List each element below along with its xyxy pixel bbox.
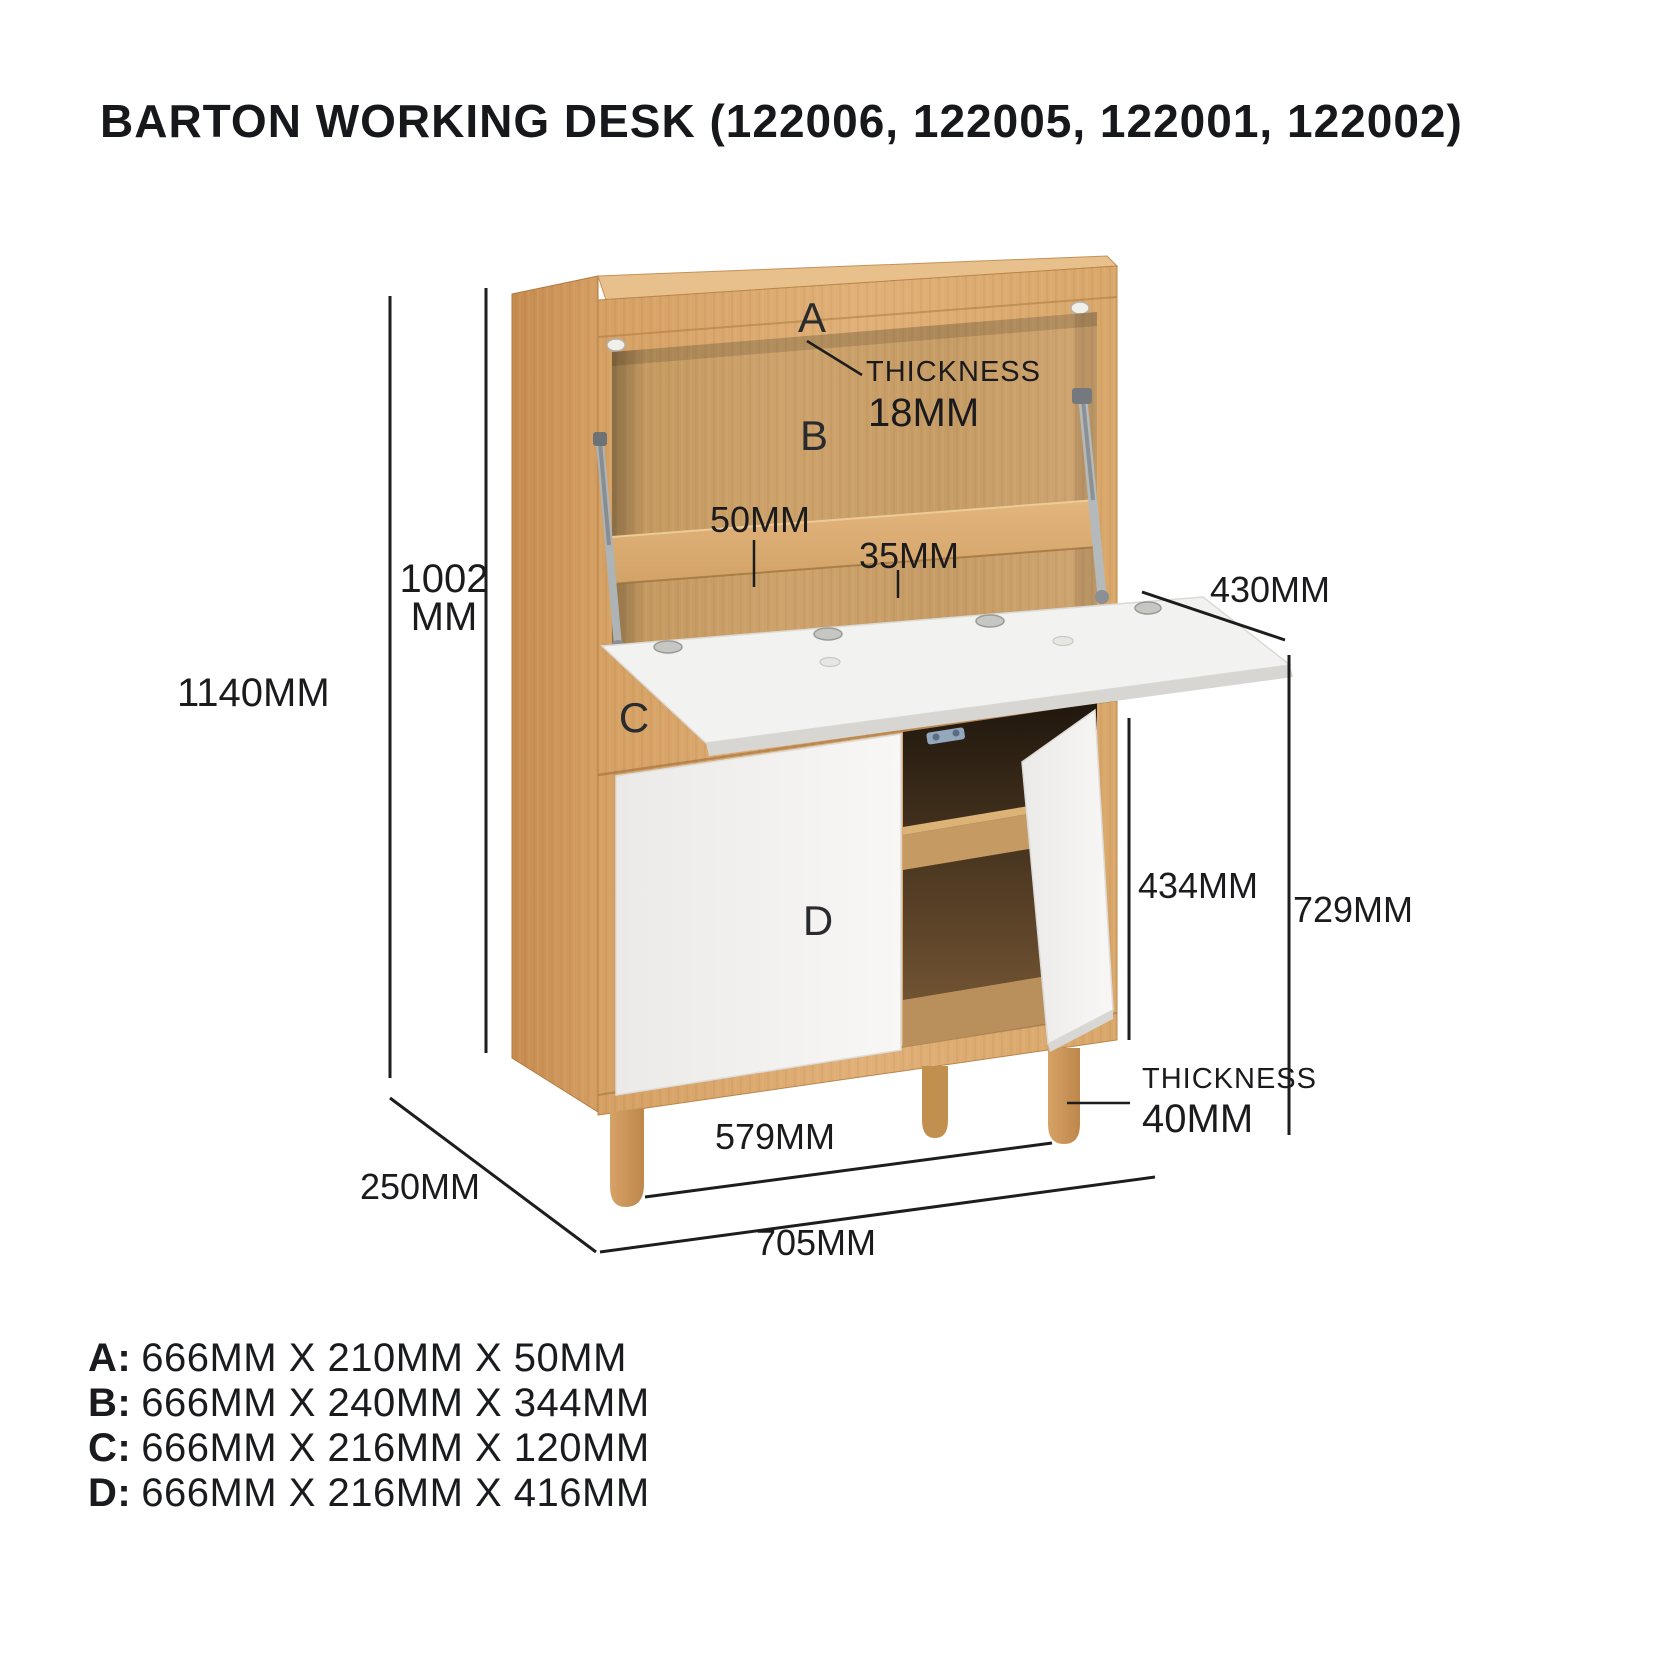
dim-line-total-width xyxy=(600,1177,1155,1252)
legend-dims-d: 666MM X 216MM X 416MM xyxy=(141,1471,649,1515)
leg-span-label: 579MM xyxy=(715,1116,835,1157)
part-label-a: A xyxy=(798,294,826,341)
leg-thickness-value: 40MM xyxy=(1142,1097,1253,1141)
rail-height-label: 50MM xyxy=(710,499,810,540)
legend-item-d: D:666MM X 216MM X 416MM xyxy=(88,1471,650,1516)
leg-thickness-label: THICKNESS xyxy=(1142,1063,1317,1095)
legend-key-d: D: xyxy=(88,1471,131,1515)
desk-depth-label: 430MM xyxy=(1210,569,1330,610)
left-side-grain xyxy=(512,276,598,1112)
part-label-c: C xyxy=(619,694,649,741)
desk-cam-left xyxy=(820,658,840,667)
legend-key-b: B: xyxy=(88,1381,131,1425)
front-left-leg xyxy=(610,1108,644,1207)
total-width-label: 705MM xyxy=(756,1222,876,1263)
lower-height-label: 729MM xyxy=(1293,889,1413,930)
dimension-legend: A:666MM X 210MM X 50MM B:666MM X 240MM X… xyxy=(88,1336,650,1516)
left-door xyxy=(616,734,901,1095)
door-height-label: 434MM xyxy=(1138,865,1258,906)
front-right-leg xyxy=(1048,1048,1080,1144)
legend-dims-a: 666MM X 210MM X 50MM xyxy=(141,1336,627,1380)
legend-key-a: A: xyxy=(88,1336,131,1380)
rail-thickness-label: 35MM xyxy=(859,535,959,576)
shelf-thickness-label: THICKNESS xyxy=(866,356,1041,388)
legend-item-b: B:666MM X 240MM X 344MM xyxy=(88,1381,650,1426)
desk-cam-right xyxy=(1053,637,1073,646)
legend-item-a: A:666MM X 210MM X 50MM xyxy=(88,1336,650,1381)
upper-height-label-2: MM xyxy=(411,595,478,639)
part-label-d: D xyxy=(803,897,833,944)
rear-right-leg xyxy=(922,1066,948,1138)
shelf-cam-left xyxy=(607,339,625,351)
legend-key-c: C: xyxy=(88,1426,131,1470)
dim-line-leg-span xyxy=(645,1143,1052,1197)
cabinet-depth-label: 250MM xyxy=(360,1166,480,1207)
page: BARTON WORKING DESK (122006, 122005, 122… xyxy=(0,0,1668,1668)
shelf-thickness-value: 18MM xyxy=(868,391,979,435)
shelf-cam-right xyxy=(1071,302,1089,314)
total-height-label: 1140MM xyxy=(177,671,330,715)
legend-item-c: C:666MM X 216MM X 120MM xyxy=(88,1426,650,1471)
part-label-b: B xyxy=(800,412,828,459)
legend-dims-b: 666MM X 240MM X 344MM xyxy=(141,1381,649,1425)
legend-dims-c: 666MM X 216MM X 120MM xyxy=(141,1426,649,1470)
